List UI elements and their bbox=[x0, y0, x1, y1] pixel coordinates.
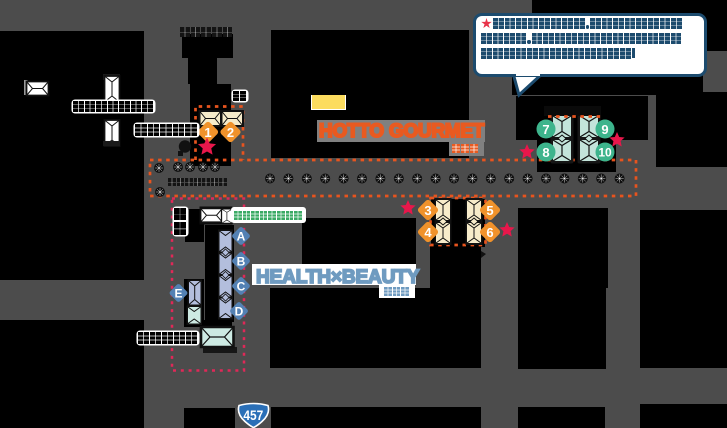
svg-text:5: 5 bbox=[486, 203, 493, 218]
svg-text:D: D bbox=[235, 305, 244, 319]
svg-text:2: 2 bbox=[227, 125, 234, 140]
svg-text:10: 10 bbox=[598, 146, 612, 160]
svg-text:B: B bbox=[237, 255, 246, 269]
svg-text:9: 9 bbox=[601, 122, 608, 137]
svg-text:6: 6 bbox=[486, 225, 493, 240]
svg-text:8: 8 bbox=[542, 145, 549, 160]
svg-text:4: 4 bbox=[424, 225, 432, 240]
svg-text:457: 457 bbox=[243, 407, 263, 423]
svg-text:7: 7 bbox=[542, 122, 549, 137]
svg-text:C: C bbox=[237, 280, 246, 294]
svg-text:E: E bbox=[174, 287, 182, 301]
svg-text:3: 3 bbox=[424, 203, 431, 218]
svg-text:1: 1 bbox=[204, 125, 211, 140]
svg-text:A: A bbox=[237, 230, 246, 244]
